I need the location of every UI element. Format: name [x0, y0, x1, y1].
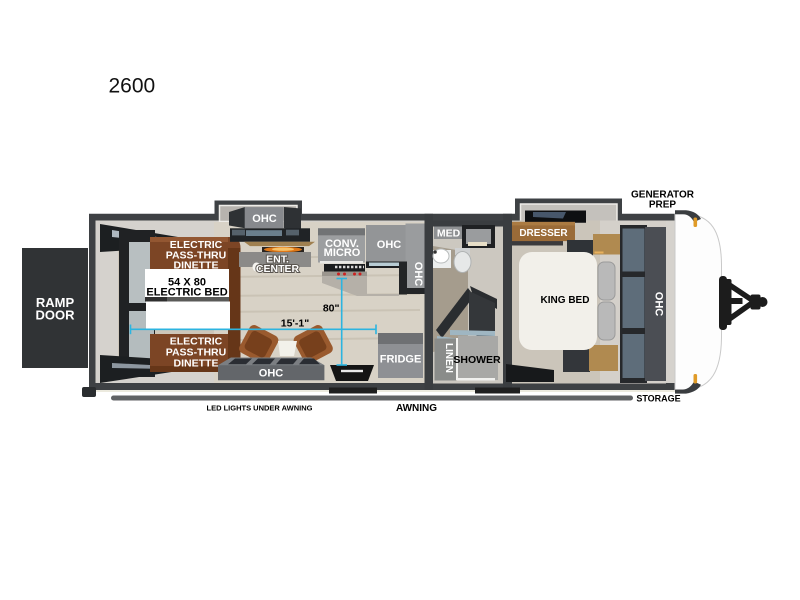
svg-text:LED LIGHTS UNDER AWNING: LED LIGHTS UNDER AWNING [207, 404, 313, 413]
svg-text:PREP: PREP [649, 200, 677, 211]
svg-text:15'-1": 15'-1" [281, 318, 310, 330]
svg-text:OHC: OHC [412, 262, 424, 287]
svg-text:STORAGE: STORAGE [636, 394, 680, 404]
svg-text:LINEN: LINEN [443, 343, 454, 373]
svg-text:OHC: OHC [259, 368, 284, 380]
svg-text:DOOR: DOOR [36, 308, 76, 323]
svg-text:SHOWER: SHOWER [453, 354, 501, 366]
svg-text:DRESSER: DRESSER [519, 228, 568, 239]
svg-text:2600: 2600 [109, 75, 156, 98]
svg-text:OHC: OHC [653, 292, 665, 317]
svg-text:ELECTRIC BED: ELECTRIC BED [146, 287, 227, 299]
svg-text:FRIDGE: FRIDGE [380, 354, 422, 366]
svg-text:DINETTE: DINETTE [174, 358, 219, 370]
svg-text:80": 80" [323, 303, 340, 315]
svg-text:OHC: OHC [252, 213, 277, 225]
svg-text:CENTER: CENTER [256, 263, 300, 275]
svg-text:KING BED: KING BED [541, 295, 590, 306]
svg-text:AWNING: AWNING [396, 403, 437, 414]
svg-text:MED: MED [437, 228, 461, 240]
svg-text:OHC: OHC [377, 239, 402, 251]
svg-text:MICRO: MICRO [324, 247, 361, 259]
